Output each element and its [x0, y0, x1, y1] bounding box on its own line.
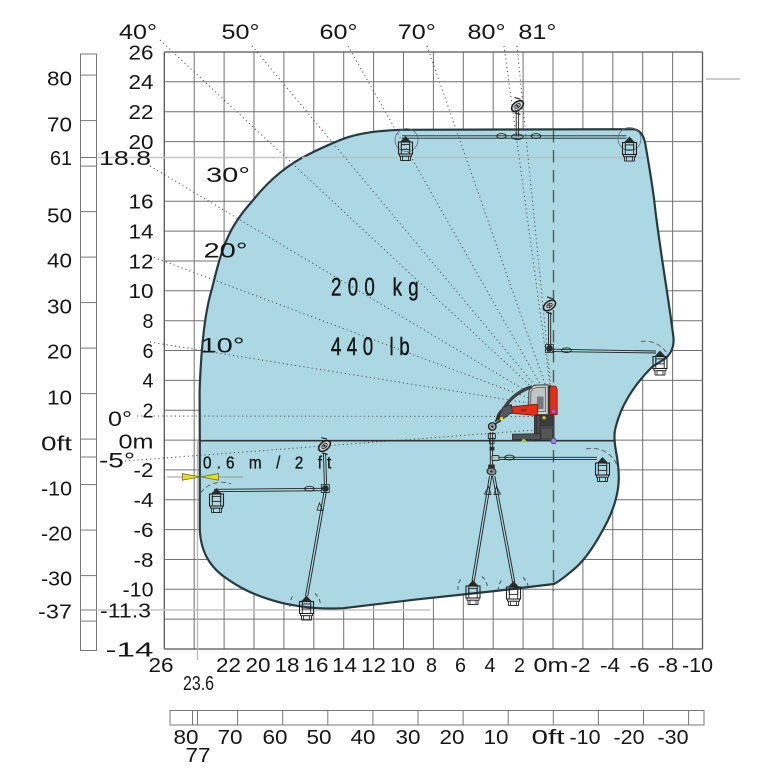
- svg-text:26: 26: [129, 41, 154, 64]
- svg-text:-30: -30: [41, 567, 72, 590]
- svg-text:4: 4: [143, 370, 154, 393]
- svg-text:10: 10: [129, 280, 154, 303]
- svg-text:-8: -8: [134, 549, 154, 572]
- svg-text:-2: -2: [571, 654, 591, 677]
- svg-text:-4: -4: [134, 489, 154, 512]
- svg-text:16: 16: [129, 191, 154, 214]
- svg-text:22: 22: [216, 654, 241, 677]
- svg-text:40°: 40°: [119, 21, 157, 44]
- svg-text:10: 10: [47, 386, 72, 409]
- svg-text:26: 26: [149, 654, 174, 677]
- svg-text:60°: 60°: [320, 21, 358, 44]
- svg-text:80°: 80°: [468, 21, 506, 44]
- svg-text:24: 24: [129, 71, 154, 94]
- svg-text:6: 6: [143, 340, 154, 363]
- svg-text:-5°: -5°: [99, 450, 135, 473]
- svg-text:70: 70: [47, 113, 72, 136]
- svg-text:20: 20: [47, 340, 72, 363]
- svg-text:61: 61: [50, 147, 72, 170]
- svg-text:-2: -2: [134, 459, 154, 482]
- svg-text:10: 10: [390, 654, 415, 677]
- svg-text:-10: -10: [41, 477, 72, 500]
- svg-text:70: 70: [218, 726, 243, 749]
- svg-text:14: 14: [129, 220, 154, 243]
- svg-text:-20: -20: [41, 522, 72, 545]
- svg-text:4: 4: [485, 654, 496, 677]
- svg-text:0m: 0m: [534, 654, 569, 677]
- svg-text:12: 12: [361, 654, 386, 677]
- svg-text:-8: -8: [658, 654, 678, 677]
- svg-text:20: 20: [440, 726, 465, 749]
- svg-text:-37: -37: [38, 600, 72, 623]
- svg-text:30°: 30°: [206, 164, 250, 187]
- svg-text:22: 22: [129, 101, 154, 124]
- svg-text:80: 80: [47, 67, 72, 90]
- svg-text:20°: 20°: [204, 240, 248, 263]
- svg-text:14: 14: [332, 654, 357, 677]
- svg-text:60: 60: [263, 726, 288, 749]
- svg-text:0ft: 0ft: [41, 432, 72, 455]
- svg-text:-10: -10: [570, 726, 601, 749]
- svg-text:-10: -10: [123, 579, 154, 602]
- svg-text:50: 50: [307, 726, 332, 749]
- svg-text:70°: 70°: [398, 21, 436, 44]
- svg-text:-30: -30: [658, 726, 689, 749]
- svg-text:18: 18: [275, 654, 300, 677]
- svg-text:40: 40: [351, 726, 376, 749]
- svg-text:-14: -14: [106, 638, 154, 661]
- svg-text:40: 40: [47, 249, 72, 272]
- svg-text:16: 16: [304, 654, 329, 677]
- svg-text:10°: 10°: [201, 335, 245, 358]
- svg-text:6: 6: [455, 654, 466, 677]
- svg-text:20: 20: [246, 654, 271, 677]
- svg-text:-4: -4: [600, 654, 620, 677]
- svg-text:0ft: 0ft: [532, 726, 565, 749]
- svg-text:2: 2: [514, 654, 525, 677]
- svg-text:81°: 81°: [518, 21, 556, 44]
- svg-text:23.6: 23.6: [183, 672, 214, 695]
- svg-text:30: 30: [396, 726, 421, 749]
- svg-text:12: 12: [129, 250, 154, 273]
- svg-text:440 lb: 440 lb: [331, 332, 415, 360]
- svg-text:8: 8: [426, 654, 437, 677]
- svg-text:18.8: 18.8: [99, 147, 151, 170]
- svg-text:-20: -20: [614, 726, 645, 749]
- svg-text:50: 50: [47, 204, 72, 227]
- svg-text:-6: -6: [134, 519, 154, 542]
- svg-text:M: M: [521, 407, 527, 412]
- svg-text:50°: 50°: [222, 21, 260, 44]
- svg-text:0.6 m / 2 ft: 0.6 m / 2 ft: [203, 452, 336, 472]
- svg-text:-10: -10: [682, 654, 713, 677]
- svg-text:0°: 0°: [108, 408, 132, 431]
- svg-text:30: 30: [47, 295, 72, 318]
- svg-text:2: 2: [143, 400, 154, 423]
- svg-text:10: 10: [484, 726, 509, 749]
- svg-text:8: 8: [143, 310, 154, 333]
- svg-text:77: 77: [186, 744, 211, 767]
- svg-text:-6: -6: [630, 654, 650, 677]
- svg-text:200 kg: 200 kg: [331, 273, 425, 301]
- svg-text:-11.3: -11.3: [100, 599, 151, 622]
